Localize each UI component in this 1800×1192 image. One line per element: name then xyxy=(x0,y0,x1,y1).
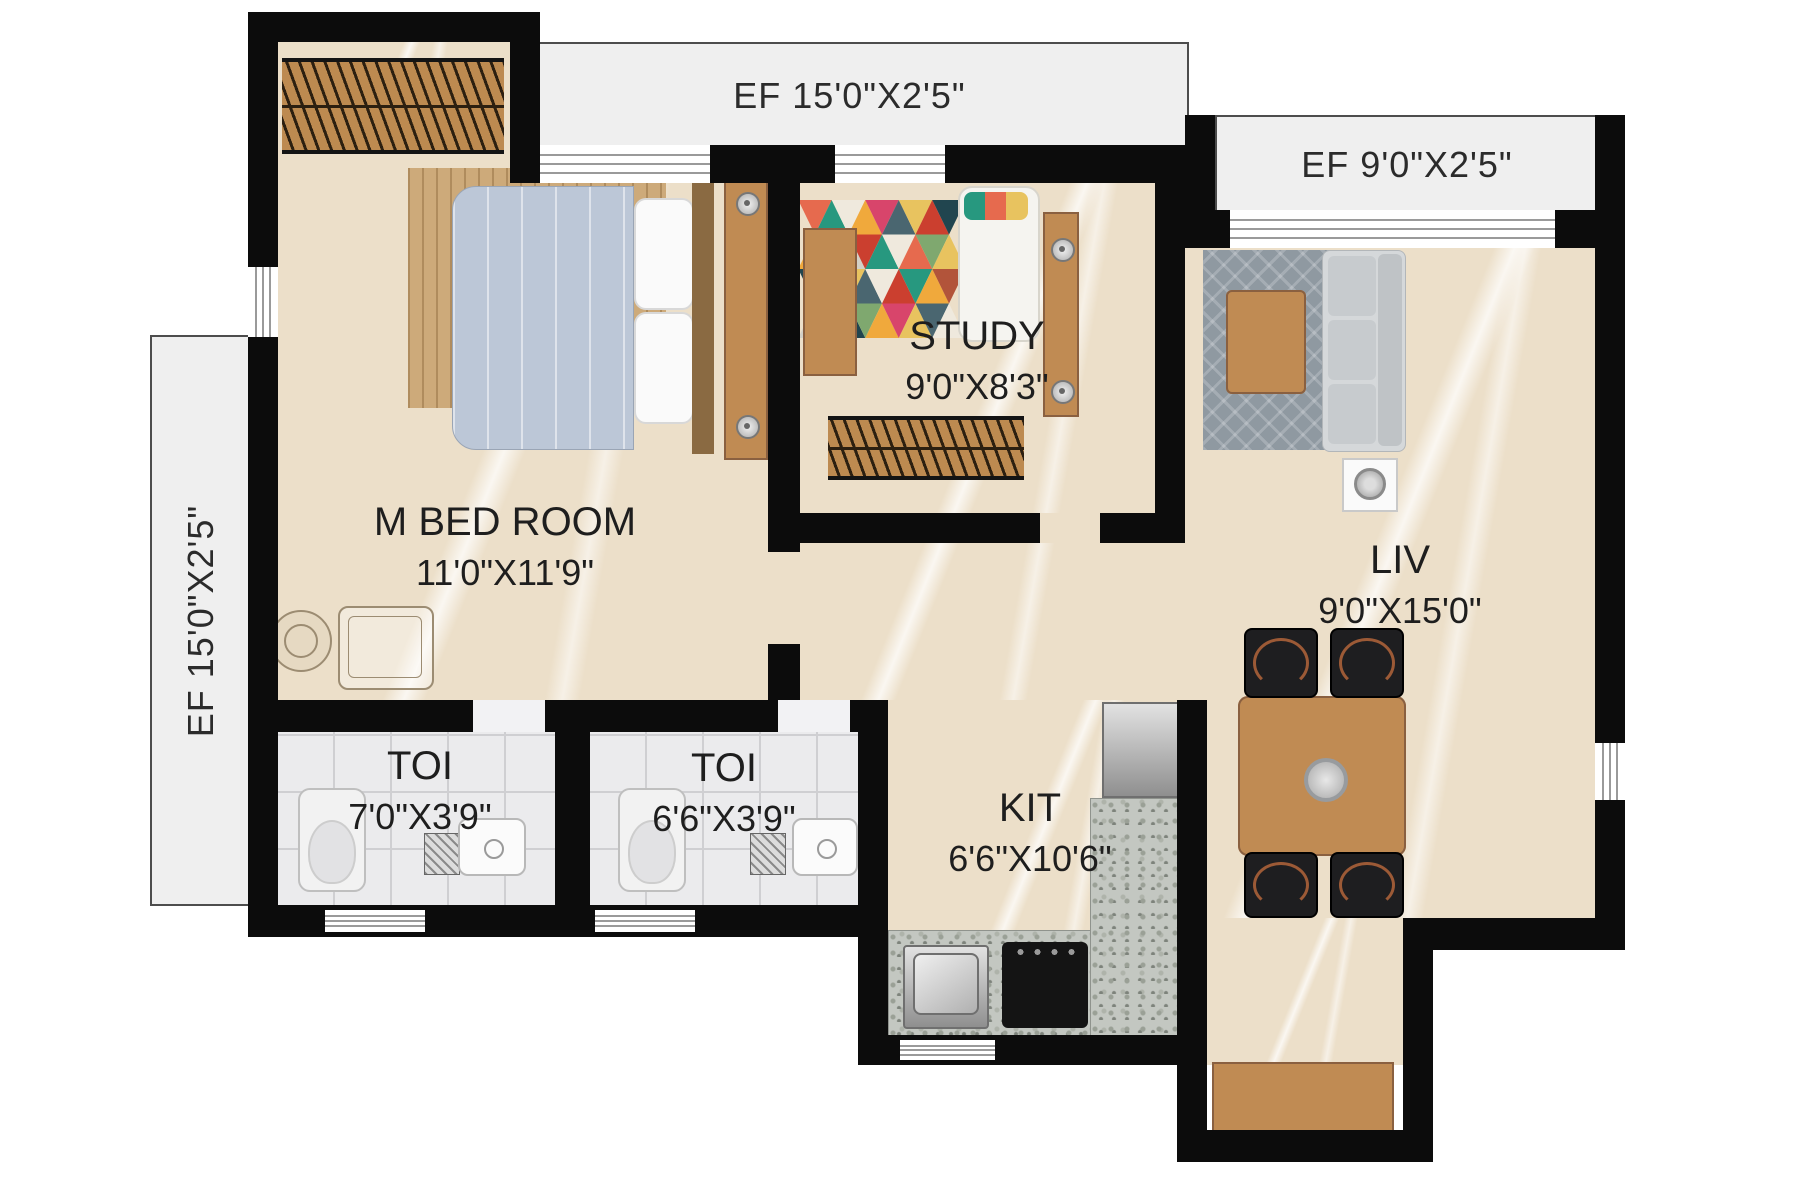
sofa-cushion-2 xyxy=(1328,320,1376,380)
fridge xyxy=(1102,702,1181,798)
door-toi1 xyxy=(473,700,545,732)
ef-strip-top: EF 15'0"X2'5" xyxy=(510,42,1189,149)
sofa-cushion-1 xyxy=(1328,256,1376,316)
dining-chair-2 xyxy=(1330,628,1404,698)
bed-headboard xyxy=(692,182,714,454)
study-wardrobe-hatch xyxy=(828,416,1024,480)
ef-left-label: EF 15'0"X2'5" xyxy=(180,504,222,736)
toilet1-name: TOI xyxy=(348,740,491,793)
mbed-label: M BED ROOM 11'0"X11'9" xyxy=(374,496,636,596)
ef-top-label: EF 15'0"X2'5" xyxy=(733,75,965,117)
wall-left-upper xyxy=(248,12,278,267)
sofa-cushion-3 xyxy=(1328,384,1376,444)
window-kit-bottom xyxy=(900,1040,995,1060)
study-cabinet-left xyxy=(803,228,857,376)
toilet2-name: TOI xyxy=(652,742,795,795)
study-knob-icon-1 xyxy=(1051,238,1075,262)
dresser-knob-icon-2 xyxy=(736,415,760,439)
ef-right-label: EF 9'0"X2'5" xyxy=(1301,144,1512,186)
wall-top-b2 xyxy=(945,145,1185,183)
bed-pillow-1 xyxy=(634,198,694,310)
study-dim: 9'0"X8'3" xyxy=(905,363,1048,411)
wall-study-bottom-b xyxy=(1100,513,1185,543)
bed xyxy=(452,186,634,450)
mbed-wardrobe xyxy=(282,58,504,154)
dining-table-knob-icon xyxy=(1304,758,1348,802)
wall-kit-liv xyxy=(1177,700,1207,1160)
wall-niche-right xyxy=(510,12,540,145)
window-top-1 xyxy=(540,145,710,183)
window-top-2 xyxy=(835,145,945,183)
living-name: LIV xyxy=(1318,534,1481,587)
wall-toi-divider xyxy=(555,732,590,907)
kitchen-dim: 6'6"X10'6" xyxy=(948,835,1111,883)
pouf-inner xyxy=(284,624,318,658)
kitchen-label: KIT 6'6"X10'6" xyxy=(948,782,1111,882)
toilet2-label: TOI 6'6"X3'9" xyxy=(652,742,795,842)
wall-study-bottom-a xyxy=(800,513,1040,543)
side-table-speaker-icon xyxy=(1354,468,1386,500)
entry-passage-floor xyxy=(1207,918,1403,1065)
kitchen-sink-basin xyxy=(913,953,979,1015)
toilet2-basin xyxy=(792,818,858,876)
dining-chair-4 xyxy=(1330,852,1404,918)
wall-kit-left xyxy=(858,700,888,1065)
living-label: LIV 9'0"X15'0" xyxy=(1318,534,1481,634)
kitchen-name: KIT xyxy=(948,782,1111,835)
dresser-knob-icon-1 xyxy=(736,192,760,216)
mbed-dim: 11'0"X11'9" xyxy=(374,549,636,597)
sofa-back xyxy=(1378,254,1402,446)
coffee-table xyxy=(1226,290,1306,394)
study-knob-icon-2 xyxy=(1051,380,1075,404)
ef-strip-left: EF 15'0"X2'5" xyxy=(150,335,252,906)
door-study xyxy=(1040,513,1100,543)
window-mbed-left xyxy=(248,267,278,337)
window-toi2-bottom xyxy=(595,910,695,932)
glass-table-inner xyxy=(348,616,422,678)
mbed-name: M BED ROOM xyxy=(374,496,636,549)
wall-right-a xyxy=(1595,248,1625,743)
bed-pillow-2 xyxy=(634,312,694,424)
door-toi2 xyxy=(778,700,850,732)
study-bed-pillow xyxy=(964,192,1028,220)
dining-chair-1 xyxy=(1244,628,1318,698)
wall-entrance-bottom xyxy=(1177,1130,1433,1162)
wall-study-right xyxy=(1155,145,1185,543)
wall-top-stub xyxy=(510,145,540,183)
floor-plan: EF 15'0"X2'5" EF 9'0"X2'5" EF 15'0"X2'5" xyxy=(0,0,1800,1192)
toilet1-dim: 7'0"X3'9" xyxy=(348,793,491,841)
wall-niche-top xyxy=(248,12,510,42)
toilet2-dim: 6'6"X3'9" xyxy=(652,795,795,843)
window-toi1-bottom xyxy=(325,910,425,932)
door-mbed xyxy=(768,552,800,644)
study-label: STUDY 9'0"X8'3" xyxy=(905,310,1048,410)
study-name: STUDY xyxy=(905,310,1048,363)
entrance-door-step xyxy=(1212,1062,1394,1132)
window-liv-right xyxy=(1595,743,1625,800)
window-liv-top xyxy=(1230,210,1555,248)
living-dim: 9'0"X15'0" xyxy=(1318,587,1481,635)
ef-strip-right: EF 9'0"X2'5" xyxy=(1215,115,1599,214)
wall-liv-top-left xyxy=(1185,210,1230,248)
dining-chair-3 xyxy=(1244,852,1318,918)
stove-knobs xyxy=(1012,948,1078,956)
wall-left-lower xyxy=(248,337,278,937)
wall-liv-top-right xyxy=(1555,210,1625,248)
toilet1-label: TOI 7'0"X3'9" xyxy=(348,740,491,840)
wall-passage-right xyxy=(1403,918,1433,1132)
wall-liv-bottom xyxy=(1430,918,1625,950)
